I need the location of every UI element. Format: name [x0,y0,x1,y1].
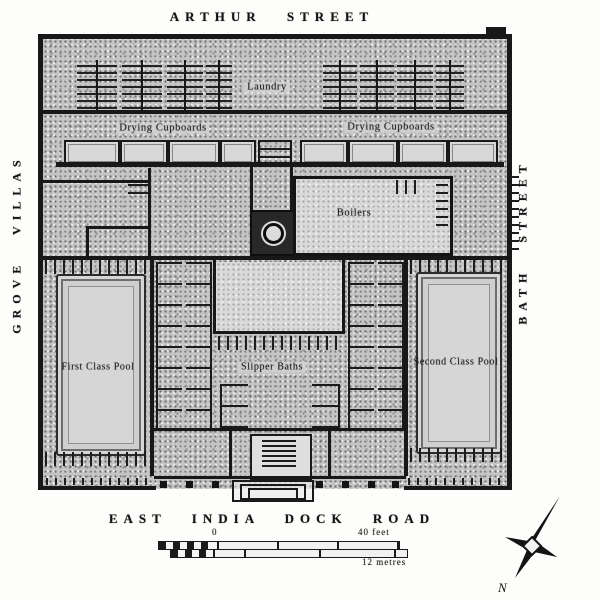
wall [213,331,345,334]
scale-feet-label: 40 feet [358,527,390,537]
wall [148,168,151,256]
wall [38,34,512,39]
cubicle-bank [378,262,404,428]
wall [328,428,331,478]
scale-zero-label: 0 [212,527,218,537]
room-label-drying-cupboards-right: Drying Cupboards [344,122,437,133]
dressing-box-band [45,452,150,466]
wall [43,180,148,183]
stair-hatch [396,180,420,194]
wall [250,167,253,213]
central-hall [216,262,342,331]
room-label-first-class-pool: First Class Pool [62,362,135,373]
wall [38,34,43,490]
stair-hatch [258,140,292,164]
wall [56,162,504,167]
room-label-boilers: Boilers [337,208,372,219]
stair-hatch [128,184,148,200]
wall [229,428,232,478]
boiler-room [293,176,453,256]
plan-canvas: ARTHUR STREET GROVE VILLAS BATH STREET E… [0,0,600,600]
dressing-box-band [46,478,152,485]
cubicle-bank [156,262,182,428]
colonnade-column [392,481,399,488]
laundry-stall-group [203,58,235,114]
cubicle-bank [220,384,248,428]
room-label-second-class-pool: Second Class Pool [414,357,499,368]
cubicle-bank [218,336,340,350]
laundry-stall-group [320,58,360,114]
street-label-east-india-dock-road: EAST INDIA DOCK ROAD [109,511,435,527]
room-label-laundry: Laundry [244,82,290,93]
wall [154,428,406,431]
wall [38,486,156,490]
laundry-stall-group [74,58,120,114]
street-label-arthur-street: ARTHUR STREET [170,9,374,25]
scale-bar-checker [159,542,215,549]
room-label-drying-cupboards-left: Drying Cupboards [116,123,209,134]
laundry-stall-group [394,58,436,114]
colonnade-column [316,481,323,488]
wall [507,34,512,490]
laundry-stall-group [357,58,397,114]
dressing-box-band [408,478,506,485]
wall [342,260,345,334]
laundry-stall-group [164,58,206,114]
colonnade-column [368,481,375,488]
room-label-slipper-baths: Slipper Baths [238,362,306,373]
cubicle-bank [186,262,212,428]
colonnade-column [212,481,219,488]
wall [86,226,89,256]
compass-north-label: N [497,580,508,595]
stair-hatch [436,184,448,230]
chimney-circle-icon [263,223,284,244]
colonnade-column [160,481,167,488]
wall [86,226,151,229]
dressing-box-band [410,448,507,462]
porch-step [248,488,298,500]
wall [213,260,216,334]
stair-hatch [262,440,296,470]
wall [404,260,408,476]
dressing-box-band [45,260,150,274]
compass-rose-icon: N [488,492,572,596]
wall [486,27,506,35]
scale-bar-checker [171,550,215,557]
laundry-stall-group [433,58,467,114]
colonnade-column [342,481,349,488]
stair-hatch [512,176,519,256]
cubicle-bank [312,384,340,428]
wall [43,110,507,114]
scale-metres-label: 12 metres [362,557,406,567]
laundry-stall-group [119,58,165,114]
street-label-grove-villas: GROVE VILLAS [10,154,25,333]
wall [404,486,512,490]
wall [150,260,154,476]
cubicle-bank [348,262,374,428]
wall [154,476,406,479]
colonnade-column [186,481,193,488]
chimney-block [250,210,297,256]
